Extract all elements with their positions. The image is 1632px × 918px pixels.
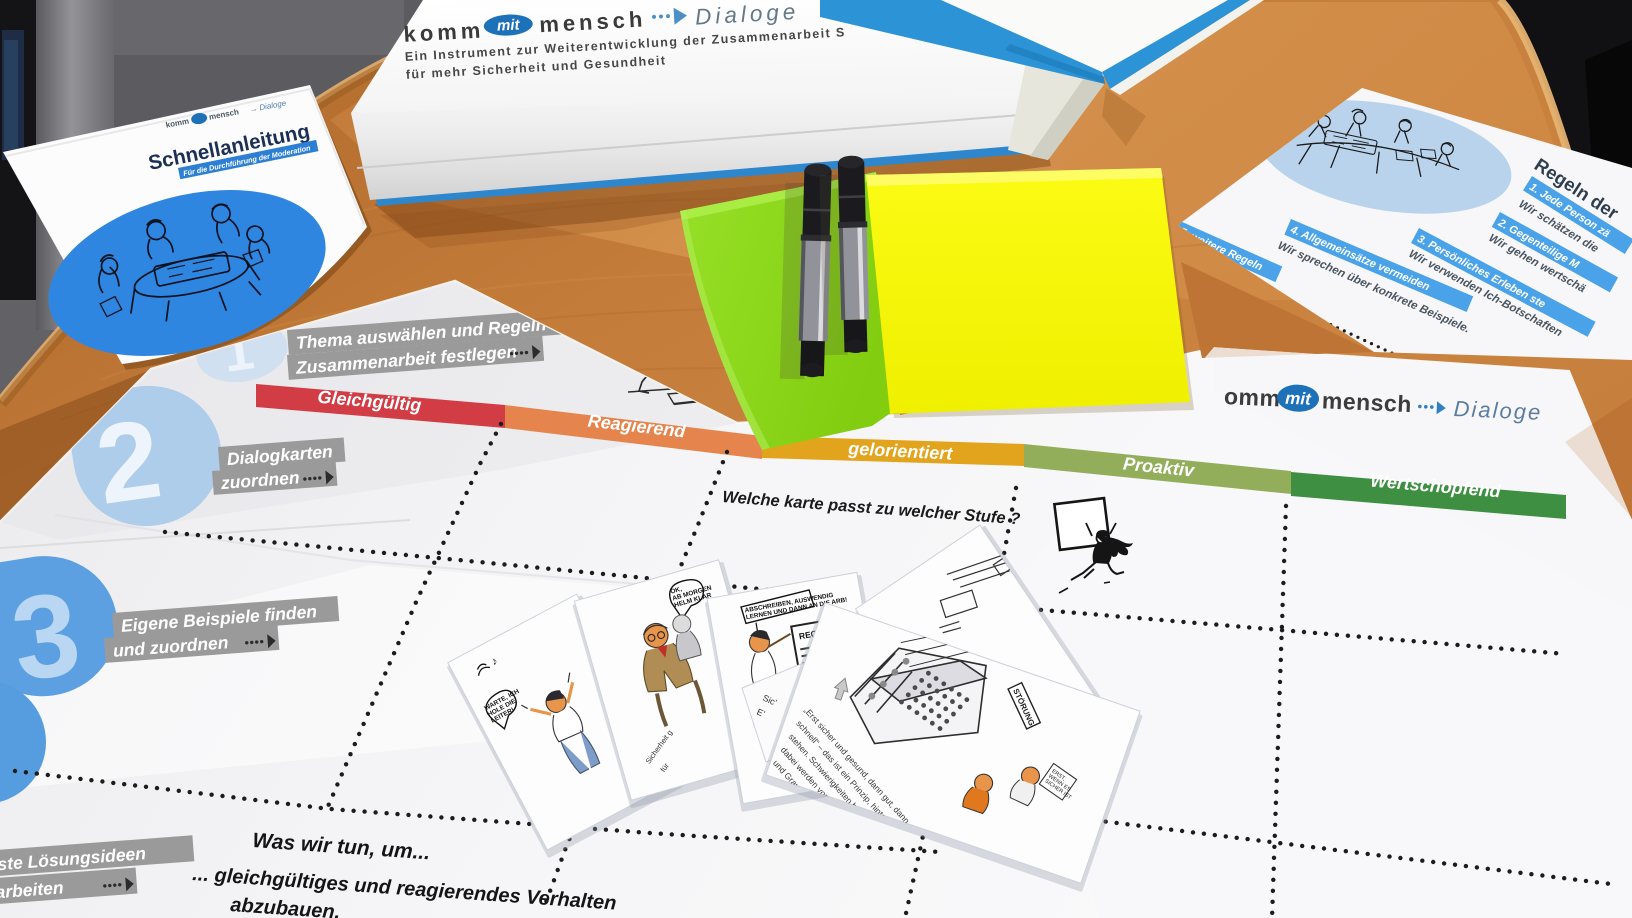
svg-text:omm: omm	[1224, 383, 1282, 411]
svg-text:mit: mit	[1285, 389, 1313, 409]
svg-text:mensch: mensch	[1321, 387, 1412, 417]
svg-text:mit: mit	[497, 16, 521, 34]
svg-text:komm: komm	[403, 17, 485, 46]
svg-text:Dialoge: Dialoge	[1453, 396, 1543, 425]
